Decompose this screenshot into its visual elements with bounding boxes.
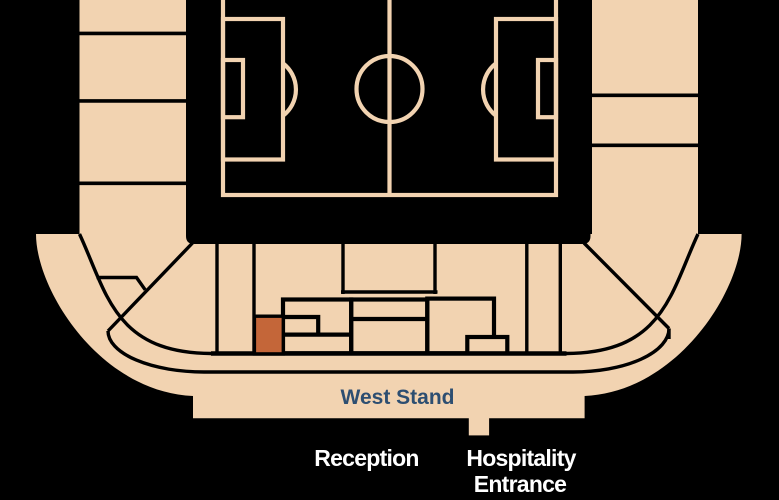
svg-text:Reception: Reception <box>314 445 418 471</box>
svg-text:Entrance: Entrance <box>474 471 566 497</box>
svg-text:Hospitality: Hospitality <box>466 445 576 471</box>
svg-text:West Stand: West Stand <box>341 386 455 409</box>
